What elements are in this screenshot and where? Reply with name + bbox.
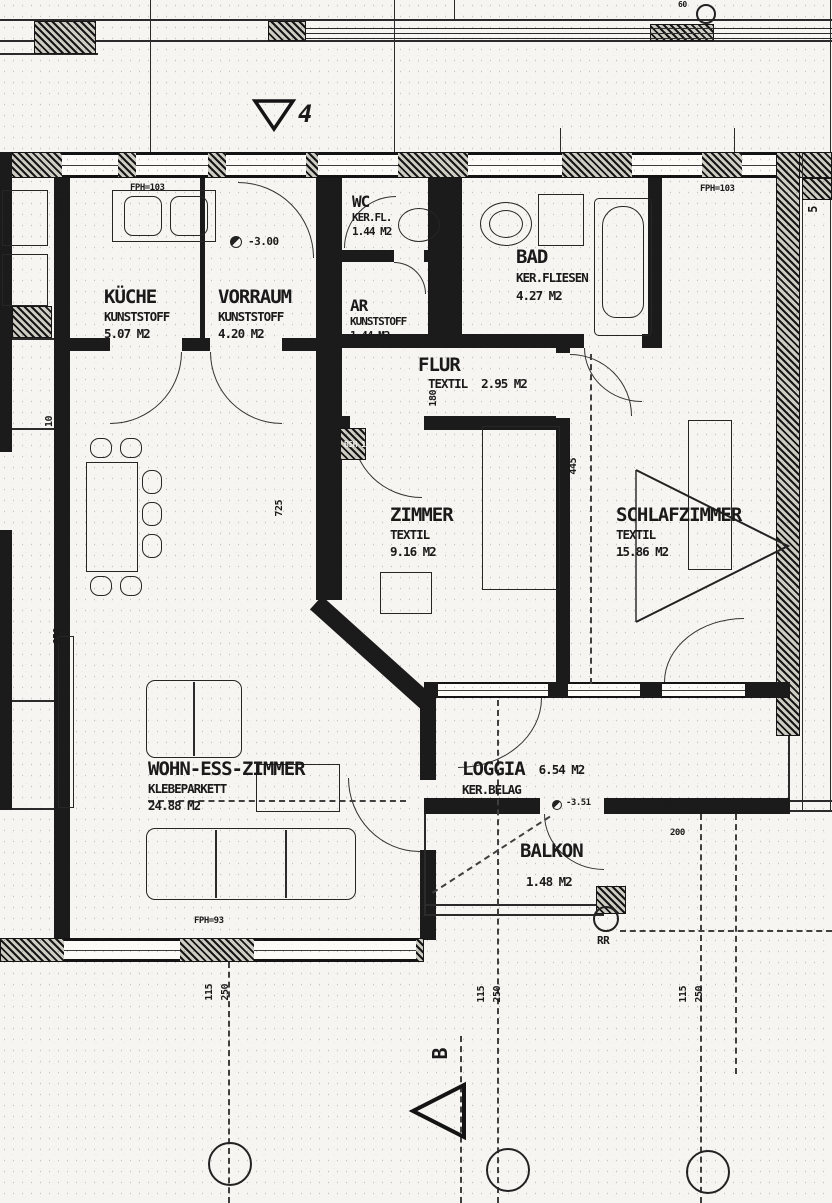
chair — [90, 576, 112, 596]
fph-annotation: FPH=103 — [700, 184, 734, 194]
neighbour-wall-block — [12, 306, 52, 338]
grid-dim: 250 — [492, 986, 503, 1003]
chair — [120, 438, 142, 458]
room-name: BALKON — [520, 842, 583, 861]
room-floor: TEXTIL — [390, 528, 453, 542]
floor-plan: 60 4 5 — [0, 0, 832, 1203]
chair — [120, 576, 142, 596]
dashed-line — [620, 930, 832, 932]
room-name: LOGGIA — [462, 760, 525, 779]
chair — [142, 502, 162, 526]
window — [62, 152, 118, 178]
room-name: KÜCHE — [104, 288, 169, 307]
room-area: 4.20 M2 — [218, 327, 291, 341]
grid-dim: 115 — [476, 986, 487, 1003]
top-strip-hatch-block — [268, 21, 306, 41]
room-floor: KER.FLIESEN — [516, 271, 588, 285]
dim: 10 — [44, 416, 55, 427]
room-name: ZIMMER — [390, 506, 453, 525]
room-area: 9.16 M2 — [390, 545, 453, 559]
grid-dim: 250 — [220, 984, 231, 1001]
grid-line — [560, 128, 561, 154]
room-floor: KER.FL. — [352, 212, 391, 224]
room-area: 15.86 M2 — [616, 545, 741, 559]
room-label-kueche: KÜCHE KUNSTSTOFF 5.07 M2 — [104, 288, 169, 341]
loggia-line-ext — [790, 800, 832, 802]
outer-wall-top — [0, 152, 832, 178]
wall-kueche-bottom — [182, 338, 210, 351]
stair-wall-block — [802, 178, 832, 200]
grid-line — [734, 128, 735, 154]
grid-bubble — [486, 1148, 530, 1192]
room-area: 4.27 M2 — [516, 289, 588, 303]
room-label-balkon: BALKON 1.48 M2 — [520, 842, 583, 889]
grid-bubble — [686, 1150, 730, 1194]
grid-dashed-line — [590, 354, 592, 684]
toilet — [398, 208, 440, 242]
top-strip-hatch-block — [34, 21, 96, 54]
room-name: WC — [352, 194, 391, 210]
top-strip-glass-line — [306, 33, 832, 34]
grid-dashed-line — [700, 814, 702, 1203]
room-floor: KUNSTSTOFF — [350, 316, 406, 328]
bed-zimmer — [482, 426, 560, 590]
room-name: FLUR — [418, 356, 527, 375]
fph-annotation: FPH=103 — [130, 183, 164, 193]
level-value: -3.51 — [566, 798, 591, 808]
sink-bowl — [124, 196, 162, 236]
glass-wall-pier — [640, 682, 662, 698]
neighbour-line — [12, 338, 54, 340]
section-marker-bottom-icon — [408, 1082, 468, 1140]
room-label-flur: FLUR TEXTIL 2.95 M2 — [418, 356, 527, 391]
room-name: AR — [350, 298, 406, 314]
balkon-railing — [424, 904, 604, 906]
top-strip-glass-line — [306, 38, 832, 39]
wall-wc-bad — [428, 178, 462, 348]
room-name: VORRAUM — [218, 288, 291, 307]
wall-loggia-bottom — [424, 798, 540, 814]
grid-dashed-line — [735, 814, 737, 1074]
chair — [142, 470, 162, 494]
sofa-cushion-line — [193, 682, 195, 756]
outer-wall-left — [54, 178, 70, 962]
room-label-ar: AR KUNSTSTOFF 1.44 M2 — [350, 298, 406, 342]
room-name: BAD — [516, 248, 588, 267]
washing-machine — [538, 194, 584, 246]
top-strip-glass-line — [306, 28, 832, 29]
bathtub-inner — [602, 206, 644, 318]
grid-dim: 250 — [694, 986, 705, 1003]
room-area: 2.95 M2 — [481, 377, 527, 391]
glass-wall-pier — [548, 682, 568, 698]
room-name: WOHN-ESS-ZIMMER — [148, 760, 305, 779]
dim: 725 — [274, 500, 285, 517]
entry-opening-vorraum — [226, 152, 306, 178]
level-symbol-icon — [552, 800, 562, 810]
grid-bubble-top-label: 60 — [678, 0, 687, 9]
table-zimmer — [380, 572, 432, 614]
wall-loggia-bottom — [604, 798, 790, 814]
neighbour-line — [12, 808, 54, 810]
right-edge-line — [830, 0, 831, 812]
room-area: 1.44 M2 — [350, 330, 406, 342]
wall-wc-ar — [342, 250, 394, 262]
dim: 180 — [428, 390, 439, 407]
section-marker-top-icon — [252, 98, 296, 132]
rainpipe-label: RR — [597, 934, 609, 947]
room-floor: KUNSTSTOFF — [104, 310, 169, 324]
room-label-zimmer: ZIMMER TEXTIL 9.16 M2 — [390, 506, 453, 559]
dining-table — [86, 462, 138, 572]
glass-wall-pier — [424, 682, 438, 698]
chair — [142, 534, 162, 558]
neighbour-room — [2, 254, 48, 306]
sofa — [146, 828, 356, 900]
glass-wall-loggia — [424, 682, 790, 698]
fph-annotation: FPH=93 — [194, 916, 224, 926]
room-area: 1.44 M2 — [352, 226, 391, 238]
window-schlafzimmer — [632, 152, 702, 178]
grid-dim: 115 — [204, 984, 215, 1001]
sink-bowl — [170, 196, 208, 236]
room-floor: KUNSTSTOFF — [218, 310, 291, 324]
room-area: 1.48 M2 — [526, 875, 583, 889]
wall-wohnzimmer-balkon — [420, 850, 436, 940]
washbasin-inner — [489, 210, 523, 238]
sofa-cushion-line — [215, 830, 217, 898]
neighbour-line — [12, 700, 54, 702]
stair-strip-line — [802, 152, 803, 812]
door-arc-ar — [394, 262, 426, 294]
dim-loggia-h: 200 — [670, 828, 685, 838]
window-wohnzimmer — [254, 938, 416, 962]
room-area: 24.88 M2 — [148, 799, 305, 813]
chair — [90, 438, 112, 458]
neighbour-room — [2, 190, 48, 246]
level-value: -3.00 — [248, 235, 279, 248]
grid-line — [150, 0, 151, 152]
grid-line — [394, 0, 395, 152]
grid-line — [454, 0, 455, 21]
wall-kueche-bottom — [54, 338, 110, 351]
room-area: 6.54 M2 — [539, 763, 585, 777]
bsh-annotation: BSH 18 — [344, 440, 370, 449]
grid-bubble — [208, 1142, 252, 1186]
door-arc-wohnzimmer — [348, 778, 420, 852]
grid-dim: 115 — [678, 986, 689, 1003]
room-label-schlafzimmer: SCHLAFZIMMER TEXTIL 15.86 M2 — [616, 506, 741, 559]
sideboard — [58, 636, 74, 808]
level-symbol-icon — [230, 236, 242, 248]
wall-wohnzimmer-loggia — [420, 698, 436, 780]
dim-loggia-w: 187 — [664, 800, 679, 810]
glass-wall-pier — [745, 682, 790, 698]
room-label-bad: BAD KER.FLIESEN 4.27 M2 — [516, 248, 588, 303]
window-bad — [468, 152, 562, 178]
wall-vorraum-wc — [316, 178, 342, 430]
sofa-cushion-line — [285, 830, 287, 898]
dim: 445 — [568, 458, 579, 475]
wall-wohnzimmer-zimmer — [316, 430, 342, 600]
window-wc — [318, 152, 398, 178]
room-floor: KER.BELAG — [462, 783, 584, 797]
dim: 100 — [56, 198, 67, 215]
room-label-vorraum: VORRAUM KUNSTSTOFF 4.20 M2 — [218, 288, 291, 341]
window-kueche — [136, 152, 208, 178]
section-marker-bottom-label: B — [428, 1048, 452, 1060]
neighbour-wall-left — [0, 530, 12, 810]
neighbour-line — [12, 428, 54, 430]
rainpipe-circle — [593, 906, 619, 932]
room-label-loggia: LOGGIA 6.54 M2 KER.BELAG — [462, 760, 584, 797]
dim: 650 — [52, 628, 63, 645]
room-name: SCHLAFZIMMER — [616, 506, 741, 525]
balkon-left-edge — [424, 814, 426, 914]
room-floor: KLEBEPARKETT — [148, 782, 305, 796]
room-label-wc: WC KER.FL. 1.44 M2 — [352, 194, 391, 238]
section-marker-top-label: 4 — [298, 100, 312, 128]
door-arc-vorraum — [210, 352, 282, 424]
stair-label: 5 — [806, 206, 820, 213]
outer-wall-right — [776, 152, 800, 736]
room-area: 5.07 M2 — [104, 327, 169, 341]
grid-bubble-top — [696, 4, 716, 24]
wall-zimmer-schlafzimmer — [556, 345, 570, 353]
door-arc-kueche — [110, 352, 182, 424]
window-wohnzimmer — [64, 938, 180, 962]
room-label-wohnzimmer: WOHN-ESS-ZIMMER KLEBEPARKETT 24.88 M2 — [148, 760, 305, 813]
loggia-line-ext — [790, 810, 832, 812]
balkon-railing — [424, 914, 604, 916]
room-floor: TEXTIL — [616, 528, 741, 542]
